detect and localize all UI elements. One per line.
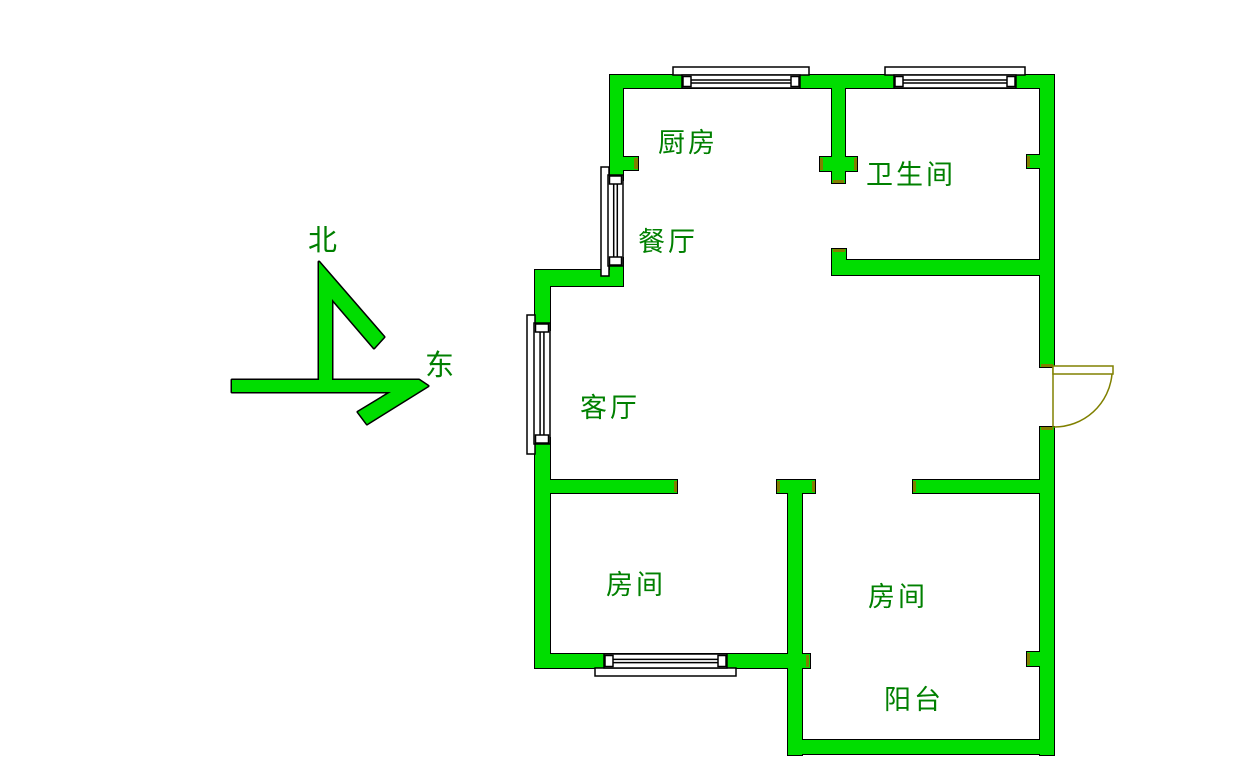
window-bathroom-post [895, 77, 903, 87]
room-label-bathroom: 卫生间 [866, 160, 956, 191]
window-living-frame [534, 323, 550, 444]
wall-end-cap [634, 158, 638, 169]
wall-end-cap [1027, 653, 1030, 665]
wall-end-cap [833, 180, 844, 183]
wall-end-cap [1041, 364, 1053, 367]
wall-end-cap [833, 249, 845, 252]
room-label-bedroom-left: 房间 [606, 570, 666, 601]
window-kitchen-sill [673, 67, 809, 75]
window-bedroom-left-sill [595, 668, 736, 676]
window-dining-frame [608, 175, 623, 266]
wall-end-cap [777, 481, 780, 492]
window-living-post [536, 324, 549, 332]
wall-segment [832, 80, 845, 158]
window-bedroom-left-post [605, 656, 613, 667]
compass-east-label: 东 [425, 348, 457, 382]
wall-segment [1040, 75, 1054, 367]
wall-segment [1040, 427, 1054, 755]
wall-segment [913, 480, 1040, 493]
window-kitchen-post [683, 77, 691, 87]
wall-end-cap [820, 158, 823, 170]
door-leaf [1053, 366, 1113, 374]
window-bedroom-left-frame [604, 654, 727, 668]
wall-segment [777, 480, 815, 493]
wall-end-cap [913, 481, 916, 492]
compass-north-label: 北 [308, 223, 340, 257]
wall-segment [535, 438, 550, 668]
window-kitchen-post [791, 77, 799, 87]
window-bathroom-frame [894, 75, 1016, 88]
wall-segment [535, 270, 550, 330]
wall-end-cap [1027, 156, 1030, 167]
wall-end-cap [1041, 427, 1053, 430]
room-label-dining: 餐厅 [638, 227, 698, 258]
wall-end-cap [854, 158, 857, 170]
wall-segment [788, 740, 1054, 754]
floor-plan: 厨房 卫生间 餐厅 客厅 房间 房间 阳台 北 东 [0, 0, 1249, 771]
wall-end-cap [674, 481, 677, 492]
window-bathroom-post [1007, 77, 1015, 87]
wall-segment [788, 483, 802, 755]
wall-segment [610, 75, 623, 180]
window-dining-post [610, 176, 622, 184]
window-living-post [536, 435, 549, 443]
wall-segment [832, 260, 1040, 275]
room-label-living: 客厅 [580, 393, 640, 424]
window-kitchen-frame [682, 75, 800, 88]
room-label-kitchen: 厨房 [658, 128, 718, 159]
wall-end-cap [806, 655, 809, 667]
window-dining-post [610, 257, 622, 265]
wall-end-cap [812, 481, 815, 492]
room-label-balcony: 阳台 [884, 685, 944, 716]
wall-segment [550, 480, 677, 493]
window-bathroom-sill [885, 67, 1025, 75]
room-label-bedroom-right: 房间 [868, 582, 928, 613]
window-bedroom-left-post [718, 656, 726, 667]
wall-segment [820, 157, 857, 171]
